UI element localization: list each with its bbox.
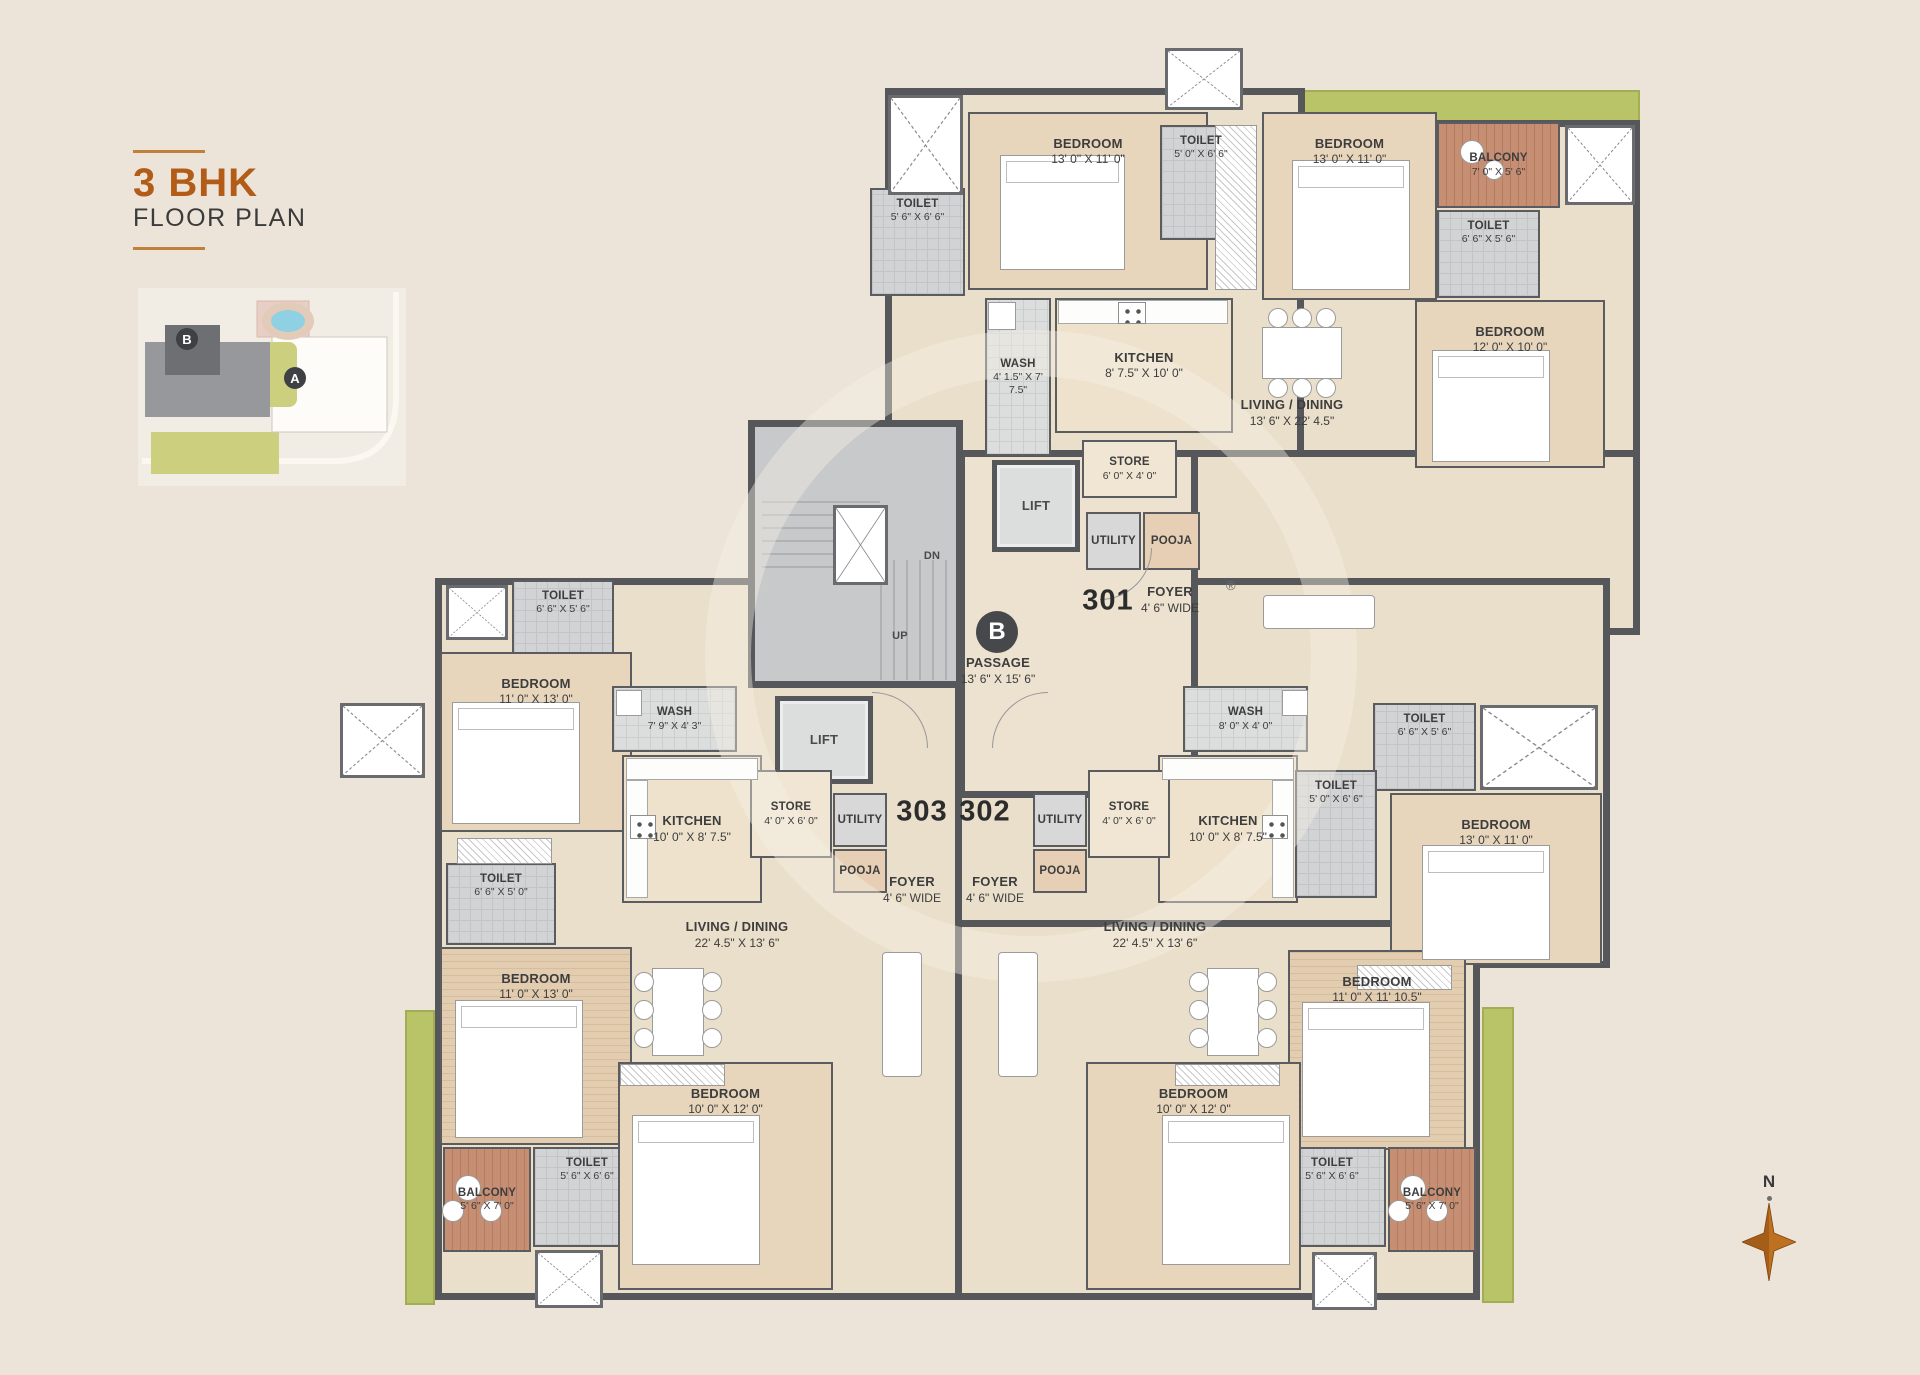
compass: N bbox=[1734, 1172, 1804, 1281]
dining-table-icon bbox=[1262, 327, 1342, 379]
washing-machine-icon bbox=[1282, 690, 1308, 716]
shaft-box bbox=[446, 585, 508, 640]
bed-icon bbox=[1162, 1115, 1290, 1265]
bed-icon bbox=[1302, 1002, 1430, 1137]
chair-icon bbox=[1268, 378, 1288, 398]
wardrobe-icon bbox=[1215, 125, 1257, 290]
kitchen-counter bbox=[1272, 780, 1294, 898]
chair-icon bbox=[1292, 378, 1312, 398]
title-block: 3 BHK FLOOR PLAN bbox=[133, 150, 353, 250]
washing-machine-icon bbox=[988, 302, 1016, 330]
unit-number-302: 302 bbox=[959, 796, 1010, 829]
room-toilet-302-a bbox=[1373, 703, 1476, 791]
sofa-icon bbox=[998, 952, 1038, 1077]
lawn-east bbox=[1482, 1007, 1514, 1303]
shaft-box bbox=[1312, 1252, 1377, 1310]
balcony-table-icon bbox=[1460, 140, 1484, 164]
chair-icon bbox=[1189, 1000, 1209, 1020]
lawn-west bbox=[405, 1010, 435, 1305]
chair-icon bbox=[1388, 1200, 1410, 1222]
chair-icon bbox=[1257, 1028, 1277, 1048]
stair-landing-box bbox=[833, 505, 888, 585]
stove-icon bbox=[1118, 302, 1146, 324]
room-toilet-303-b bbox=[446, 863, 556, 945]
chair-icon bbox=[1316, 308, 1336, 328]
wardrobe-icon bbox=[457, 838, 552, 864]
site-badge-b: B bbox=[182, 332, 191, 347]
bed-icon bbox=[1432, 350, 1550, 462]
unit-number-303: 303 bbox=[896, 796, 947, 829]
title-rule-bottom bbox=[133, 247, 205, 250]
site-lawn-south bbox=[151, 432, 279, 474]
chair-icon bbox=[702, 1028, 722, 1048]
page-title: 3 BHK bbox=[133, 163, 353, 203]
block-badge: B bbox=[976, 611, 1018, 653]
chair-icon bbox=[1268, 308, 1288, 328]
chair-icon bbox=[634, 1000, 654, 1020]
chair-icon bbox=[1189, 972, 1209, 992]
chair-icon bbox=[702, 972, 722, 992]
shaft-box bbox=[535, 1250, 603, 1308]
chair-icon bbox=[1257, 972, 1277, 992]
bed-icon bbox=[455, 1000, 583, 1138]
chair-icon bbox=[634, 972, 654, 992]
bed-icon bbox=[1292, 160, 1410, 290]
washing-machine-icon bbox=[616, 690, 642, 716]
title-rule-top bbox=[133, 150, 205, 153]
stove-icon bbox=[1262, 815, 1288, 839]
site-pool bbox=[271, 310, 305, 332]
bed-icon bbox=[452, 702, 580, 824]
dining-table-icon bbox=[1207, 968, 1259, 1056]
chair-icon bbox=[702, 1000, 722, 1020]
sofa-icon bbox=[882, 952, 922, 1077]
bed-icon bbox=[1422, 845, 1550, 960]
site-map: B A bbox=[137, 287, 407, 487]
shaft-box bbox=[1480, 705, 1598, 790]
bed-icon bbox=[632, 1115, 760, 1265]
bed-icon bbox=[1000, 155, 1125, 270]
chair-icon bbox=[1257, 1000, 1277, 1020]
watermark-ring bbox=[705, 330, 1357, 982]
unit-number-301: 301 bbox=[1082, 585, 1133, 618]
compass-dot bbox=[1767, 1196, 1772, 1201]
chair-icon bbox=[1316, 378, 1336, 398]
compass-star-icon bbox=[1742, 1203, 1796, 1281]
balcony-table-icon bbox=[455, 1175, 481, 1201]
kitchen-counter bbox=[626, 758, 758, 780]
kitchen-counter bbox=[1162, 758, 1294, 780]
chair-icon bbox=[1484, 160, 1504, 180]
kitchen-counter bbox=[626, 780, 648, 898]
dining-table-icon bbox=[652, 968, 704, 1056]
chair-icon bbox=[480, 1200, 502, 1222]
stove-icon bbox=[630, 815, 656, 839]
chair-icon bbox=[442, 1200, 464, 1222]
shaft-box bbox=[1165, 48, 1243, 110]
chair-icon bbox=[634, 1028, 654, 1048]
site-badge-a: A bbox=[290, 371, 300, 386]
balcony-table-icon bbox=[1400, 1175, 1426, 1201]
chair-icon bbox=[1189, 1028, 1209, 1048]
shaft-box bbox=[888, 95, 963, 195]
room-toilet-301-c bbox=[1437, 210, 1540, 298]
sofa-icon bbox=[1263, 595, 1375, 629]
chair-icon bbox=[1292, 308, 1312, 328]
wardrobe-icon bbox=[1175, 1064, 1280, 1086]
compass-north-label: N bbox=[1734, 1172, 1804, 1192]
chair-icon bbox=[1426, 1200, 1448, 1222]
registered-mark: ® bbox=[1226, 578, 1236, 593]
shaft-box bbox=[340, 703, 425, 778]
room-toilet-301-a bbox=[870, 188, 965, 296]
wardrobe-icon bbox=[1357, 965, 1452, 990]
page-subtitle: FLOOR PLAN bbox=[133, 205, 353, 233]
shaft-box bbox=[1565, 125, 1635, 205]
floor-plan-page: 3 BHK FLOOR PLAN B A bbox=[0, 0, 1920, 1375]
wardrobe-icon bbox=[620, 1064, 725, 1086]
